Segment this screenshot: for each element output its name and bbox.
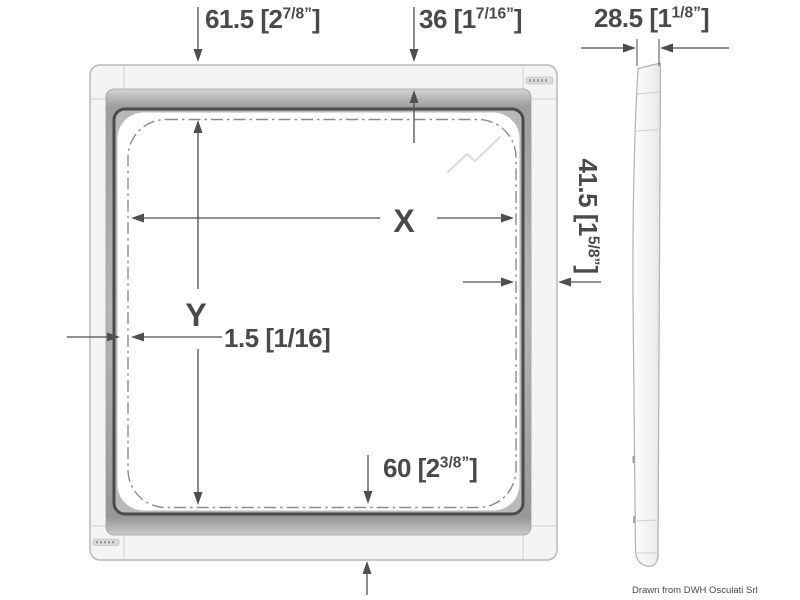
dim-60-mm: 60 [2 [383, 453, 440, 483]
side-profile [633, 63, 661, 566]
dim-41-5-label: 41.5 [15/8”] [575, 158, 601, 273]
dim-1-5-label: 1.5 [1/16] [224, 325, 330, 351]
dim-x-label: X [393, 205, 414, 237]
dim-28-5-label: 28.5 [11/8”] [594, 5, 709, 31]
dim-36-label: 36 [17/16”] [419, 6, 522, 32]
technical-drawing: 61.5 [27/8”] 36 [17/16”] 28.5 [11/8”] 41… [0, 0, 800, 600]
front-view [90, 65, 557, 560]
dim-41-5-mm: 41.5 [1 [573, 158, 603, 235]
dim-41-5-bracket: ] [573, 265, 603, 273]
dim-36-bracket: ] [514, 4, 522, 34]
dim-61-5-mm: 61.5 [2 [205, 4, 282, 34]
dim-36-inch-fraction: 7/16” [476, 5, 514, 22]
brand-badge-top-right [526, 77, 553, 84]
drawing-canvas [0, 0, 800, 600]
side-view [633, 63, 661, 566]
dim-60-bracket: ] [469, 453, 477, 483]
brand-badge-bottom-left [93, 539, 119, 546]
dim-28-5-inch-fraction: 1/8” [671, 4, 700, 21]
frame-opening [118, 113, 520, 511]
dim-61-5-bracket: ] [312, 4, 320, 34]
dim-28-5-bracket: ] [701, 3, 709, 33]
dim-41-5-inch-fraction: 5/8” [585, 236, 602, 265]
dim-y-label: Y [185, 299, 206, 331]
dim-28-5-arrows [581, 39, 729, 66]
dim-61-5-label: 61.5 [27/8”] [205, 6, 320, 32]
dim-61-5-inch-fraction: 7/8” [282, 5, 311, 22]
dim-36-mm: 36 [1 [419, 4, 476, 34]
dim-61-5-arrow [194, 7, 203, 62]
dim-60-label: 60 [23/8”] [383, 455, 477, 481]
dim-60-inch-fraction: 3/8” [440, 454, 469, 471]
credit-text: Drawn from DWH Osculati Srl [632, 586, 758, 596]
dim-28-5-mm: 28.5 [1 [594, 3, 671, 33]
